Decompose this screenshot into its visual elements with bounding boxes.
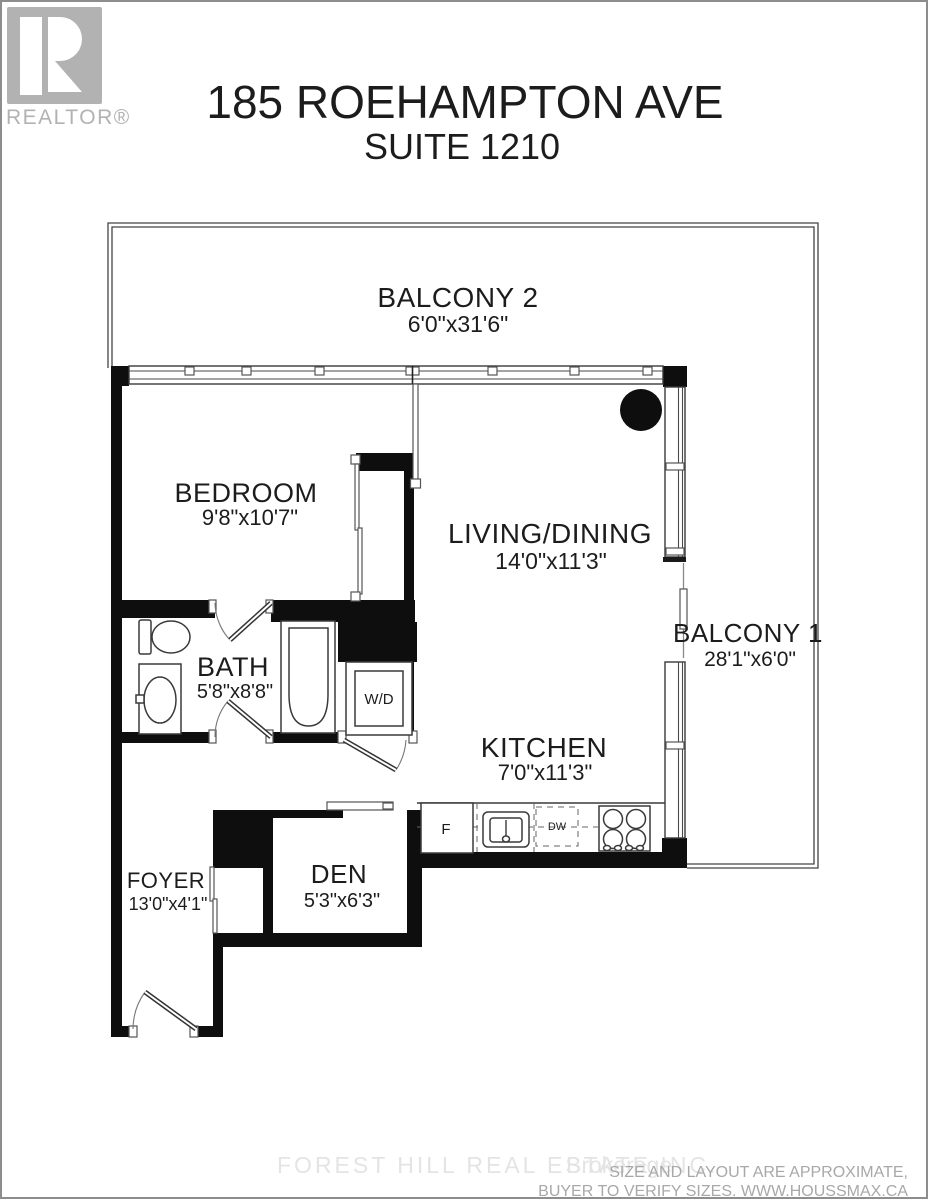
room-label-bedroom: BEDROOM xyxy=(174,478,317,508)
window-wall-right xyxy=(663,387,686,562)
title-block: 185 ROEHAMPTON AVE SUITE 1210 xyxy=(206,76,723,167)
bedroom-closet-door xyxy=(351,455,362,601)
room-dims-bath: 5'8"x8'8" xyxy=(197,681,273,703)
window-wall-kitchen xyxy=(665,662,685,838)
disclaimer-line1: SIZE AND LAYOUT ARE APPROXIMATE, xyxy=(609,1164,908,1181)
fridge: F xyxy=(421,803,473,853)
bathtub xyxy=(281,621,335,733)
page-title-suite: SUITE 1210 xyxy=(364,126,560,167)
hall-door xyxy=(344,740,406,770)
room-label-foyer: FOYER xyxy=(127,868,205,893)
room-label-den: DEN xyxy=(311,859,367,889)
bathroom-sink xyxy=(136,664,181,734)
realtor-logo-r-bar xyxy=(20,17,42,95)
dishwasher-label: DW xyxy=(548,821,567,833)
entry-door xyxy=(133,992,196,1029)
den-sliding-door xyxy=(327,802,393,810)
floor-plan: REALTOR® 185 ROEHAMPTON AVE SUITE 1210 xyxy=(0,0,928,1200)
room-label-balcony1: BALCONY 1 xyxy=(673,618,823,648)
bath-door-lower xyxy=(215,701,271,737)
floor-plan-page: REALTOR® 185 ROEHAMPTON AVE SUITE 1210 xyxy=(0,0,928,1200)
page-title-address: 185 ROEHAMPTON AVE xyxy=(206,76,723,128)
realtor-logo: REALTOR® xyxy=(6,7,131,129)
room-dims-balcony1: 28'1"x6'0" xyxy=(704,648,796,671)
room-dims-balcony2: 6'0"x31'6" xyxy=(408,311,509,337)
room-label-bath: BATH xyxy=(197,652,269,682)
room-dims-bedroom: 9'8"x10'7" xyxy=(202,505,298,530)
realtor-logo-text: REALTOR® xyxy=(6,106,131,129)
room-label-kitchen: KITCHEN xyxy=(481,732,607,763)
window-wall-top xyxy=(129,366,663,384)
column xyxy=(620,389,662,431)
kitchen-sink xyxy=(483,812,529,847)
toilet xyxy=(139,620,190,654)
room-dims-living: 14'0"x11'3" xyxy=(495,548,607,574)
footer: FOREST HILL REAL ESTATE INC. Brokerage S… xyxy=(277,1152,908,1200)
bath-door-upper xyxy=(215,603,271,640)
foyer-closet-door xyxy=(210,867,217,933)
room-dims-den: 5'3"x6'3" xyxy=(304,890,380,912)
disclaimer-line2: BUYER TO VERIFY SIZES. WWW.HOUSSMAX.CA xyxy=(538,1183,908,1200)
stove xyxy=(599,806,650,851)
page-border xyxy=(1,1,927,1198)
room-dims-foyer: 13'0"x4'1" xyxy=(129,894,208,914)
washer-dryer-label: W/D xyxy=(364,691,393,708)
fridge-label: F xyxy=(441,821,450,838)
room-label-balcony2: BALCONY 2 xyxy=(377,282,538,313)
room-label-living: LIVING/DINING xyxy=(448,518,652,549)
room-dims-kitchen: 7'0"x11'3" xyxy=(498,760,593,785)
washer-dryer-closet: W/D xyxy=(346,662,412,735)
